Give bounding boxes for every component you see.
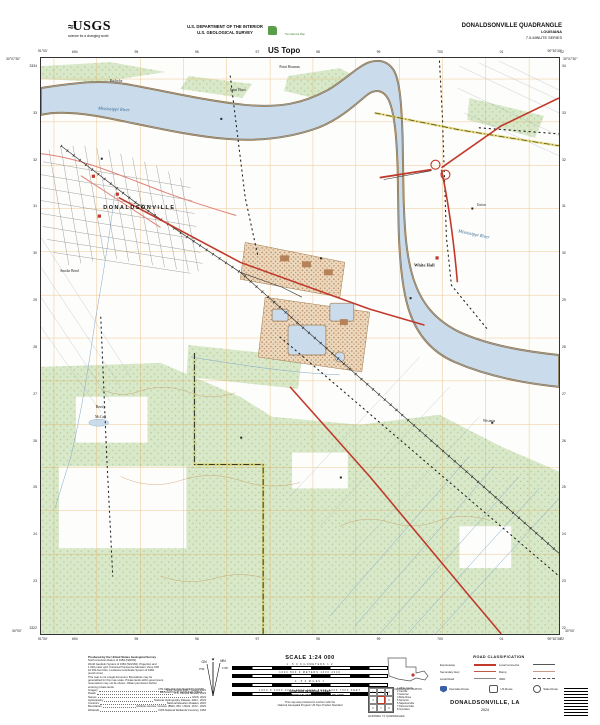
grid-ticks-top: 69495969798997000102	[72, 50, 564, 54]
scale-bar: 1 .5 0 KILOMETERS 1 2	[232, 663, 388, 670]
grid-ticks-bottom: 69495969798997000102	[72, 637, 564, 641]
expressway-line-swatch	[474, 664, 496, 666]
grid-tick: 24	[33, 532, 37, 536]
usgs-logo-word: USGS	[73, 19, 112, 34]
grid-tick: 98	[316, 637, 320, 641]
route-shields: Interstate RouteUS RouteState Route	[440, 685, 558, 693]
grid-tick: 96	[195, 637, 199, 641]
sheet-year: 2024	[430, 708, 540, 712]
national-map-tagline: The National Map	[284, 33, 304, 36]
scale-bar: 1 .5 0 MILES 1	[232, 680, 388, 687]
quadrangle-series: 7.5-MINUTE SERIES	[462, 35, 562, 41]
us-route-item: US Route	[489, 685, 512, 693]
grid-tick: 02	[560, 50, 564, 54]
grid-tick: 29	[562, 298, 566, 302]
sheet-name: DONALDSONVILLE, LA	[430, 700, 540, 706]
industrial-complex	[240, 242, 370, 372]
grid-tick: 25	[33, 485, 37, 489]
scale-bar: 1000 500 0 METERS 1000 2000	[232, 671, 388, 678]
grid-tick: 26	[33, 439, 37, 443]
adjoining-cell: 7	[377, 704, 385, 712]
ustopo-flag-icon	[268, 26, 277, 35]
grid-tick: 26	[562, 439, 566, 443]
mn-angle: 1°29'	[222, 666, 228, 670]
quadrangle-title-block: DONALDSONVILLE QUADRANGLE LOUISIANA 7.5-…	[462, 23, 562, 41]
fourwd-line-swatch	[533, 678, 555, 679]
grid-tick: 29	[33, 298, 37, 302]
grid-tick: 95	[134, 50, 138, 54]
adjoining-center-cell	[377, 696, 385, 704]
road-class-row: 4WD	[499, 675, 558, 682]
grid-tick: 700	[437, 637, 443, 641]
road-class-rows: ExpresswaySecondary HwyLocal RoadLocal C…	[440, 661, 558, 682]
grid-tick: 24	[562, 532, 566, 536]
grid-tick: 32	[562, 158, 566, 162]
usgs-tagline: science for a changing world	[68, 34, 134, 38]
grid-tick: 99	[377, 50, 381, 54]
corner-lat-top-right: 30°07'30"	[563, 57, 578, 61]
adjoining-grid: 12345678	[368, 687, 394, 713]
ramp-line-swatch	[533, 671, 555, 672]
connector-line-swatch	[533, 664, 555, 665]
road-class-row: Local Road	[440, 675, 499, 682]
adjoining-cell: 4	[369, 696, 377, 704]
road-class-row: Secondary Hwy	[440, 668, 499, 675]
secondary-line-swatch	[474, 671, 496, 672]
grid-tick: 25	[562, 485, 566, 489]
grid-tick: 23	[562, 579, 566, 583]
grid-tick: 01	[500, 637, 504, 641]
grid-tick: 23	[33, 579, 37, 583]
grid-tick: 30	[562, 251, 566, 255]
map-collar-header: ≈USGS science for a changing world U.S. …	[0, 0, 600, 56]
adjoining-cell: 3	[385, 688, 393, 696]
adjoining-cell: 8	[385, 704, 393, 712]
grid-tick: 99	[377, 637, 381, 641]
credit-text: Produced by the United States Geological…	[88, 656, 206, 689]
grid-tick: 31	[33, 204, 37, 208]
mn-label: MN	[220, 659, 226, 663]
sheet-title-block: DONALDSONVILLE, LA 2024	[430, 700, 540, 712]
scale-title: SCALE 1:24 000	[232, 655, 388, 661]
grid-tick: 01	[500, 50, 504, 54]
adjoining-cell: 5	[385, 696, 393, 704]
grid-tick: 27	[562, 392, 566, 396]
gn-angle: 0°31'	[199, 667, 205, 671]
grid-tick: 97	[256, 50, 260, 54]
gn-label: GN	[201, 660, 207, 664]
adjoining-cell: 6	[369, 704, 377, 712]
corner-lat-bottom-right: 30°00'	[565, 629, 575, 633]
corner-lon-top-left: 91°00'	[38, 49, 48, 53]
grid-ticks-right: 34333231302928272625242322	[562, 64, 566, 630]
road-class-row: Local Connector	[499, 661, 558, 668]
grid-tick: 694	[72, 637, 78, 641]
road-class-row: Expressway	[440, 661, 499, 668]
interstate-shield-icon	[440, 686, 447, 693]
interstate-route-item: Interstate Route	[440, 685, 469, 693]
road-class-row: Ramp	[499, 668, 558, 675]
grid-tick: 34	[562, 64, 566, 68]
grid-tick: 32	[33, 158, 37, 162]
state-locator: QUADRANGLE LOCATION	[384, 656, 430, 691]
donaldsonville-street-grid	[41, 146, 202, 274]
grid-tick: 31	[562, 204, 566, 208]
conformance-note: This map was produced to conform with th…	[232, 701, 388, 707]
grid-tick: 3322	[29, 626, 37, 630]
adjoining-caption: ADJOINING 7.5' QUADRANGLES	[368, 713, 438, 718]
contour-interval-note: CONTOUR INTERVAL 5 FEET NORTH AMERICAN V…	[232, 690, 388, 698]
usgs-logo: ≈USGS science for a changing world	[68, 17, 134, 43]
grid-ticks-left: 333433323130292827262524233322	[24, 64, 37, 630]
usgs-topo-sheet: { "header": { "usgs_logo": {"wave": "≈",…	[0, 0, 600, 725]
barcode	[564, 686, 588, 716]
grid-tick: 33	[562, 111, 566, 115]
production-credits: Produced by the United States Geological…	[88, 656, 206, 712]
grid-tick: 28	[33, 345, 37, 349]
local-line-swatch	[474, 678, 496, 679]
grid-tick: 28	[562, 345, 566, 349]
corner-lat-top-left: 30°07'30"	[6, 57, 21, 61]
grid-tick: 33	[33, 111, 37, 115]
grid-tick: 02	[560, 637, 564, 641]
topo-map-canvas: Point HoumasBachelorSaint ElmoMississipp…	[40, 57, 560, 635]
grid-tick: 700	[437, 50, 443, 54]
state-route-item: State Route	[533, 685, 558, 693]
corner-lon-bottom-left: 91°00'	[38, 637, 48, 641]
louisiana-outline	[384, 656, 430, 682]
grid-tick: 97	[256, 637, 260, 641]
corner-lat-bottom-left: 30°00'	[12, 629, 22, 633]
grid-tick: 95	[134, 637, 138, 641]
grid-tick: 22	[562, 626, 566, 630]
grid-tick: 30	[33, 251, 37, 255]
quad-location-dot	[411, 673, 414, 676]
adjoining-quads: 12345678 1 White Castle2 Carville3 Geism…	[368, 687, 438, 718]
topo-map-drawing	[41, 58, 559, 634]
adjoining-cell: 1	[369, 688, 377, 696]
grid-tick: 96	[195, 50, 199, 54]
road-classification-legend: ROAD CLASSIFICATION ExpresswaySecondary …	[440, 655, 558, 693]
adjoining-cell: 2	[377, 688, 385, 696]
grid-tick: 3334	[29, 64, 37, 68]
grid-tick: 27	[33, 392, 37, 396]
svg-text:★: ★	[211, 657, 215, 662]
declination-caption: UTM GRID AND 2024 MAGNETIC NORTH DECLINA…	[152, 688, 210, 694]
state-shield-icon	[533, 685, 541, 693]
credit-source-row: WetlandsFWS National Wetlands Inventory,…	[88, 709, 206, 712]
us-shield-icon	[489, 685, 498, 693]
road-class-title: ROAD CLASSIFICATION	[440, 655, 558, 659]
grid-tick: 98	[316, 50, 320, 54]
grid-tick: 694	[72, 50, 78, 54]
